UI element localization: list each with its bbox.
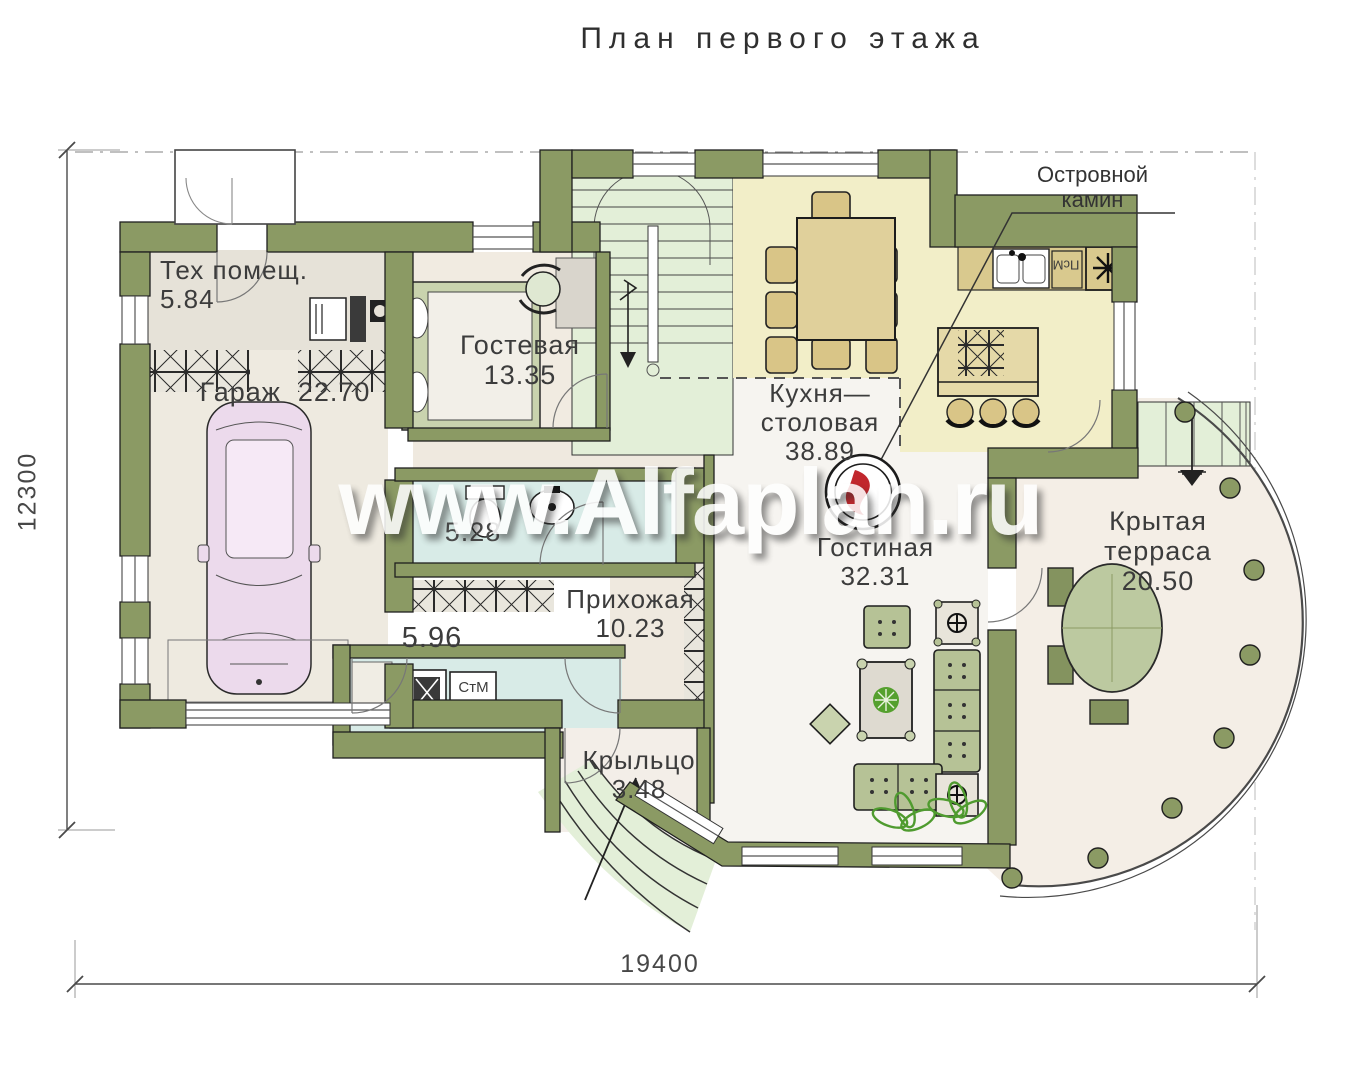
room-name-line1: Крытая [1073, 506, 1243, 536]
room-area: 10.23 [553, 614, 708, 643]
kitchen-island-icon [938, 328, 1039, 426]
vestibule [175, 150, 295, 224]
room-label-living: Гостиная 32.31 [788, 533, 963, 591]
side-table-icon-2 [936, 774, 978, 816]
room-name: Тех помещ. [160, 256, 390, 285]
side-table-icon [934, 600, 980, 646]
sofa-vertical-icon [934, 650, 980, 772]
floor-plan-title: План первого этажа [548, 22, 1018, 56]
room-area: 38.89 [715, 437, 925, 466]
room-area: 22.70 [298, 377, 371, 407]
room-area: 20.50 [1073, 566, 1243, 596]
room-name-line2: столовая [715, 408, 925, 437]
callout-line1: Островной [1037, 162, 1148, 187]
room-name: Гостиная [788, 533, 963, 562]
callout-island-fireplace: Островной камин [1005, 162, 1180, 213]
room-label-laundry: 5.96 [372, 622, 492, 654]
armchair-icon [864, 606, 910, 648]
dimension-vertical: 12300 [14, 402, 43, 582]
kitchen-counter [958, 247, 1136, 290]
room-label-hall: Прихожая 10.23 [553, 585, 708, 643]
room-name-line1: Кухня— [715, 379, 925, 408]
room-label-garage: Гараж 22.70 [160, 377, 410, 407]
bar-stool-icon [947, 399, 1039, 426]
room-label-guest: Гостевая 13.35 [425, 330, 615, 390]
room-label-tech: Тех помещ. 5.84 [160, 256, 390, 314]
room-area: 5.28 [445, 517, 502, 547]
floor-plan-page: План первого этажа Островной камин Тех п… [0, 0, 1346, 1080]
washing-machine-label: СтМ [451, 680, 496, 697]
room-name: Гостевая [425, 330, 615, 360]
callout-line2: камин [1062, 187, 1124, 212]
room-area: 13.35 [425, 360, 615, 390]
room-label-bathroom: 5.28 [428, 517, 518, 547]
room-area: 3.48 [565, 775, 713, 804]
dishwasher-label: ПсМ [1049, 257, 1083, 272]
hall-closet-icon [398, 580, 554, 612]
terrace-chair-icon [1090, 700, 1128, 724]
wardrobe-icon [556, 258, 600, 328]
room-area: 5.84 [160, 285, 390, 314]
room-label-kitchen: Кухня— столовая 38.89 [715, 379, 925, 466]
room-name: Гараж [200, 377, 281, 407]
room-label-porch: Крыльцо 3.48 [565, 746, 713, 804]
dimension-horizontal: 19400 [575, 950, 745, 979]
room-area: 32.31 [788, 562, 963, 591]
kitchen-sink-icon [993, 249, 1049, 288]
coffee-table-icon [857, 659, 915, 741]
room-name: Прихожая [553, 585, 708, 614]
car-icon [198, 402, 320, 694]
room-name-line2: терраса [1073, 536, 1243, 566]
room-area: 5.96 [402, 622, 462, 654]
room-label-terrace: Крытая терраса 20.50 [1073, 506, 1243, 597]
room-name: Крыльцо [565, 746, 713, 775]
